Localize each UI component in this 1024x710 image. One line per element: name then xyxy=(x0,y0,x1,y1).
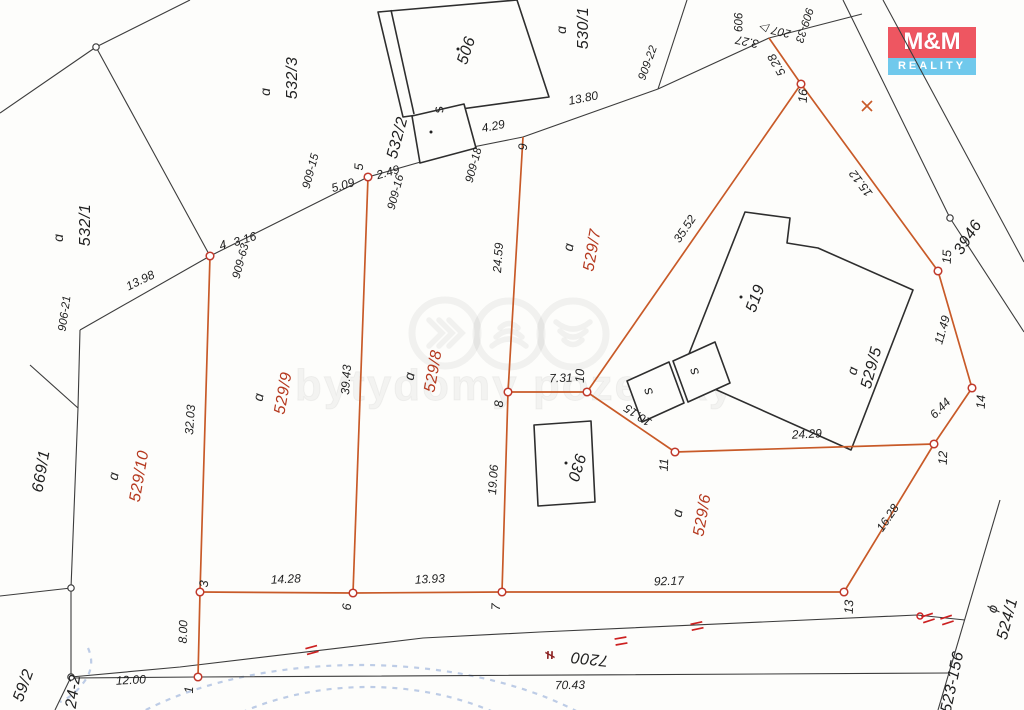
parcel-label-24-2: 24-2 xyxy=(63,673,85,710)
point-number-11: 11 xyxy=(657,458,671,471)
point-number-13: 13 xyxy=(842,600,856,614)
land-use-symbol: ɑ xyxy=(560,242,577,253)
boundary-line xyxy=(71,330,80,677)
measurement-5-28: 5.28 xyxy=(764,51,788,79)
survey-mark-906-21: 906-21 xyxy=(57,295,74,332)
parcel-label-59-2: 59/2 xyxy=(10,667,37,704)
survey-point-3 xyxy=(196,588,204,596)
watermark-circle-3 xyxy=(540,301,606,367)
hatch-marks: ≠ xyxy=(305,613,953,660)
parcel-label-524-1: 524/1 xyxy=(994,596,1021,641)
measurement-4-29: 4.29 xyxy=(480,117,506,135)
parcel-label-530-1: 530/1 xyxy=(575,7,592,50)
measurement-13-93: 13.93 xyxy=(414,571,445,587)
parcel-label-523-156: 523-156 xyxy=(938,650,968,710)
measurement-16-28: 16.28 xyxy=(873,501,902,534)
measurement-7-31: 7.31 xyxy=(549,371,573,386)
survey-point-16 xyxy=(797,80,805,88)
building-519-dot xyxy=(740,296,743,299)
hatch-mark xyxy=(615,637,628,645)
survey-point-1 xyxy=(194,673,202,681)
point-number-15: 15 xyxy=(940,250,954,264)
point-number-1: 1 xyxy=(182,686,196,693)
measurement-32-03: 32.03 xyxy=(182,404,198,435)
survey-point-5 xyxy=(364,173,372,181)
watermark-arcs-down-icon xyxy=(556,322,590,345)
measurement-70-43: 70.43 xyxy=(555,678,586,693)
hatch-mark xyxy=(305,646,318,655)
tick-cross xyxy=(862,101,872,111)
survey-point-11 xyxy=(671,448,679,456)
point-number-14: 14 xyxy=(974,395,988,409)
building-532-2-dot xyxy=(430,131,433,134)
land-use-symbol: ɑ xyxy=(105,471,122,482)
measurement-8-00: 8.00 xyxy=(176,620,191,644)
highlight-line xyxy=(200,592,844,593)
measurement-14-28: 14.28 xyxy=(270,571,301,587)
watermark-circle-2 xyxy=(476,301,542,367)
survey-point-15 xyxy=(934,267,942,275)
map-drawing: bytydomy pozemky xyxy=(0,0,1024,710)
point-number-4: 4 xyxy=(217,237,228,252)
measurement-6-44: 6.44 xyxy=(927,395,954,422)
point-number-7: 7 xyxy=(489,602,503,610)
boundary-line xyxy=(80,256,210,330)
point-number-3: 3 xyxy=(197,580,211,587)
measurement-39-43: 39.43 xyxy=(338,364,354,395)
parcel-label-3946: 3946 xyxy=(951,217,986,258)
point-number-8: 8 xyxy=(492,400,506,407)
parcel-label-7200: 7200 xyxy=(570,648,609,669)
orchard-symbol: ϕ xyxy=(983,603,1001,615)
point-number-10: 10 xyxy=(573,369,587,383)
survey-point-13 xyxy=(840,588,848,596)
boundary-line xyxy=(96,47,210,256)
boundary-line-hatched xyxy=(71,615,965,677)
measurement-13-80: 13.80 xyxy=(567,88,599,108)
measurement-12-00: 12.00 xyxy=(115,672,146,688)
boundary-line xyxy=(30,365,78,408)
parcel-label-669-1: 669/1 xyxy=(30,449,54,494)
parcel-label-529-7: 529/7 xyxy=(581,227,605,272)
survey-point-7 xyxy=(498,588,506,596)
measurement-5-09: 5.09 xyxy=(330,175,357,195)
survey-point-4 xyxy=(206,252,214,260)
land-use-symbol: ɑ xyxy=(669,508,686,519)
parcel-label-532-3: 532/3 xyxy=(284,57,301,100)
boundary-line xyxy=(658,0,687,89)
measurement-35-52: 35.52 xyxy=(670,212,699,245)
boundary-line xyxy=(71,673,949,678)
watermark-chevrons-right-icon xyxy=(429,320,462,346)
land-use-symbol: ɑ xyxy=(250,392,267,403)
point-number-16: 16 xyxy=(796,89,810,103)
measurement-3-16: 3.16 xyxy=(232,229,259,249)
survey-point-6 xyxy=(349,589,357,597)
boundary-line xyxy=(0,0,190,113)
boundary-point xyxy=(947,215,953,221)
measurement-24-59: 24.59 xyxy=(490,242,506,274)
land-use-symbol: ɑ xyxy=(257,88,273,96)
survey-mark-207: 207 ▷ xyxy=(758,20,793,39)
hatch-mark xyxy=(691,622,704,630)
parcel-labels: 532/3 ɑ 532/1 ɑ 530/1 ɑ 506 532/2 519 93… xyxy=(10,7,1021,710)
measurement-3-27: 3.27 xyxy=(733,32,760,51)
measurement-11-49: 11.49 xyxy=(931,314,953,346)
parcel-label-529-10: 529/10 xyxy=(127,449,153,503)
boundary-point xyxy=(93,44,99,50)
survey-point-12 xyxy=(930,440,938,448)
boundary-point xyxy=(68,585,74,591)
cadastral-map: M&M REALITY bytydomy pozemky xyxy=(0,0,1024,710)
measurement-24-29: 24.29 xyxy=(790,426,822,442)
fence-symbol: ≠ xyxy=(541,651,558,661)
land-use-symbol: ɑ xyxy=(50,234,66,242)
parcel-label-532-1: 532/1 xyxy=(77,204,94,247)
point-number-5: 5 xyxy=(352,163,366,170)
parcel-label-529-9: 529/9 xyxy=(272,371,296,416)
watermark-arcs-up-icon xyxy=(492,324,526,347)
parcel-label-532-2: 532/2 xyxy=(384,115,411,160)
survey-point-14 xyxy=(968,384,976,392)
building-930-dot xyxy=(565,462,568,465)
point-number-9: 9 xyxy=(516,143,530,150)
land-use-symbol: ɑ xyxy=(553,26,569,34)
measurement-15-12: 15.12 xyxy=(846,167,875,200)
stamp-arc-inner xyxy=(131,687,605,710)
building-519 xyxy=(681,212,913,450)
point-number-6: 6 xyxy=(340,603,354,610)
boundary-line xyxy=(0,588,71,596)
point-number-12: 12 xyxy=(936,451,950,465)
survey-mark-909: 909 xyxy=(731,12,743,32)
measurement-92-17: 92.17 xyxy=(654,573,686,588)
survey-point-8 xyxy=(504,388,512,396)
survey-mark-909-18: 909-18 xyxy=(464,146,485,184)
measurement-19-06: 19.06 xyxy=(485,464,501,495)
parcel-label-529-6: 529/6 xyxy=(691,493,715,538)
survey-point-10 xyxy=(583,388,591,396)
survey-mark-909-22: 909-22 xyxy=(636,44,660,82)
boundary-line xyxy=(658,14,862,89)
hatch-mark xyxy=(940,615,953,624)
highlight-line xyxy=(198,256,210,677)
survey-mark-909-33: 909-33 xyxy=(792,6,815,44)
survey-mark-909-15: 909-15 xyxy=(301,152,322,190)
